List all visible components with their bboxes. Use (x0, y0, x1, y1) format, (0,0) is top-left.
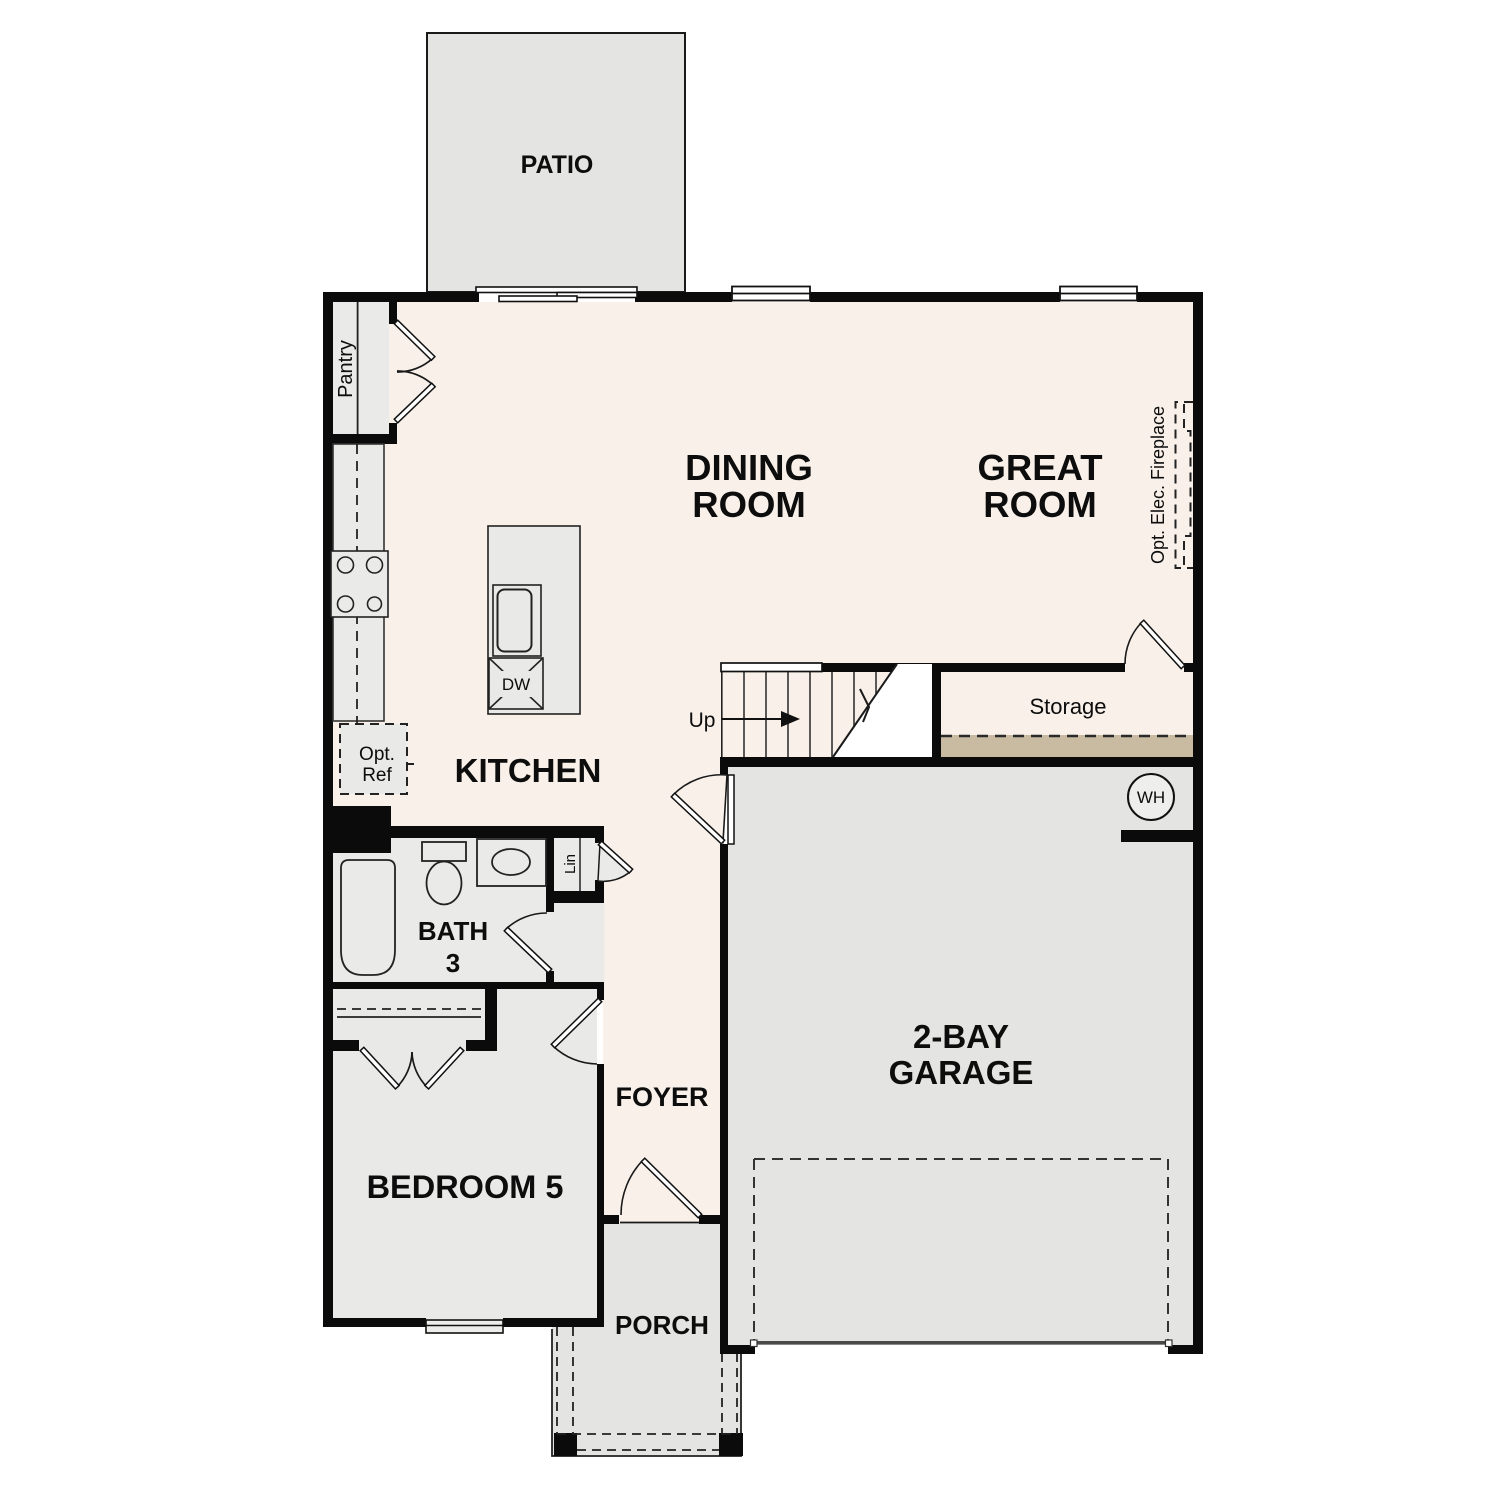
svg-text:BEDROOM 5: BEDROOM 5 (367, 1169, 564, 1205)
svg-text:BATH: BATH (418, 916, 488, 946)
svg-text:WH: WH (1137, 788, 1165, 807)
svg-text:Lin: Lin (562, 854, 579, 874)
svg-text:2-BAY: 2-BAY (913, 1018, 1009, 1055)
svg-text:ROOM: ROOM (692, 484, 806, 525)
svg-text:FOYER: FOYER (615, 1082, 708, 1112)
svg-text:Pantry: Pantry (335, 340, 357, 398)
svg-text:Opt. Elec. Fireplace: Opt. Elec. Fireplace (1148, 406, 1168, 564)
svg-text:DINING: DINING (685, 447, 813, 488)
svg-text:Ref: Ref (362, 765, 392, 786)
svg-text:ROOM: ROOM (983, 484, 1097, 525)
svg-text:GREAT: GREAT (977, 447, 1102, 488)
svg-text:Up: Up (689, 709, 716, 732)
svg-text:GARAGE: GARAGE (889, 1054, 1034, 1091)
svg-text:PORCH: PORCH (615, 1310, 709, 1340)
svg-text:Storage: Storage (1029, 694, 1106, 719)
svg-text:DW: DW (502, 675, 530, 694)
svg-text:3: 3 (446, 948, 460, 978)
svg-text:KITCHEN: KITCHEN (455, 752, 602, 789)
svg-text:Opt.: Opt. (359, 744, 395, 765)
svg-text:PATIO: PATIO (521, 151, 594, 179)
